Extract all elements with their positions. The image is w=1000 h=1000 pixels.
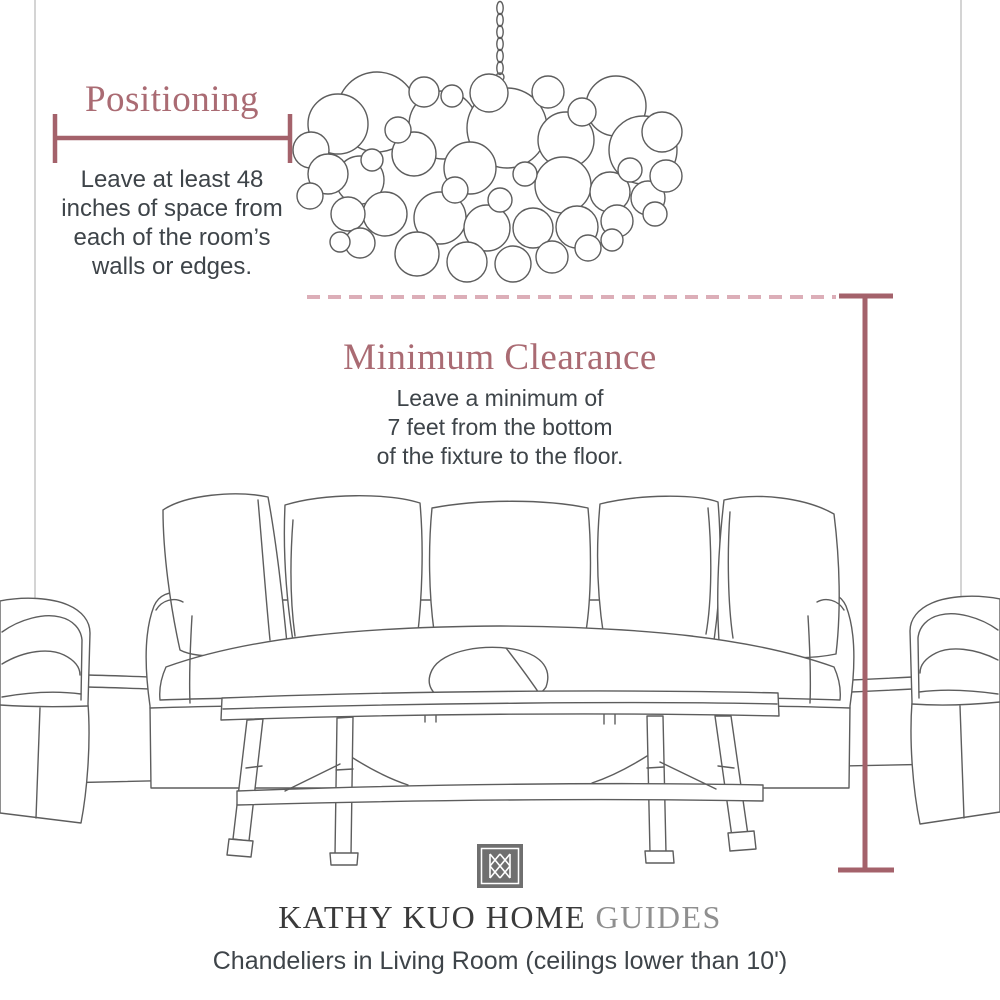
chandelier-illustration (293, 2, 682, 283)
armchair-right-illustration (910, 596, 1000, 824)
positioning-ruler-horizontal (55, 114, 290, 163)
positioning-description: Leave at least 48 inches of space from e… (61, 165, 282, 281)
positioning-line-2: inches of space from (61, 194, 282, 223)
positioning-line-4: walls or edges. (61, 252, 282, 281)
clearance-line-1: Leave a minimum of (377, 384, 624, 413)
positioning-line-1: Leave at least 48 (61, 165, 282, 194)
brand-name: KATHY KUO HOME GUIDES (278, 899, 722, 936)
brand-main: KATHY KUO HOME (278, 899, 586, 935)
clearance-line-2: 7 feet from the bottom (377, 413, 624, 442)
clearance-title: Minimum Clearance (343, 336, 657, 379)
clearance-description: Leave a minimum of 7 feet from the botto… (377, 384, 624, 471)
kathy-kuo-home-logo-icon (477, 844, 523, 888)
positioning-title: Positioning (85, 78, 259, 121)
positioning-line-3: each of the room’s (61, 223, 282, 252)
chandelier-chain (496, 2, 504, 82)
infographic-canvas: Positioning Leave at least 48 inches of … (0, 0, 1000, 1000)
caption: Chandeliers in Living Room (ceilings low… (213, 947, 788, 976)
clearance-line-3: of the fixture to the floor. (377, 442, 624, 471)
chandelier-bubbles (293, 72, 682, 282)
brand-guides: GUIDES (595, 899, 721, 935)
armchair-left-illustration (0, 598, 90, 823)
